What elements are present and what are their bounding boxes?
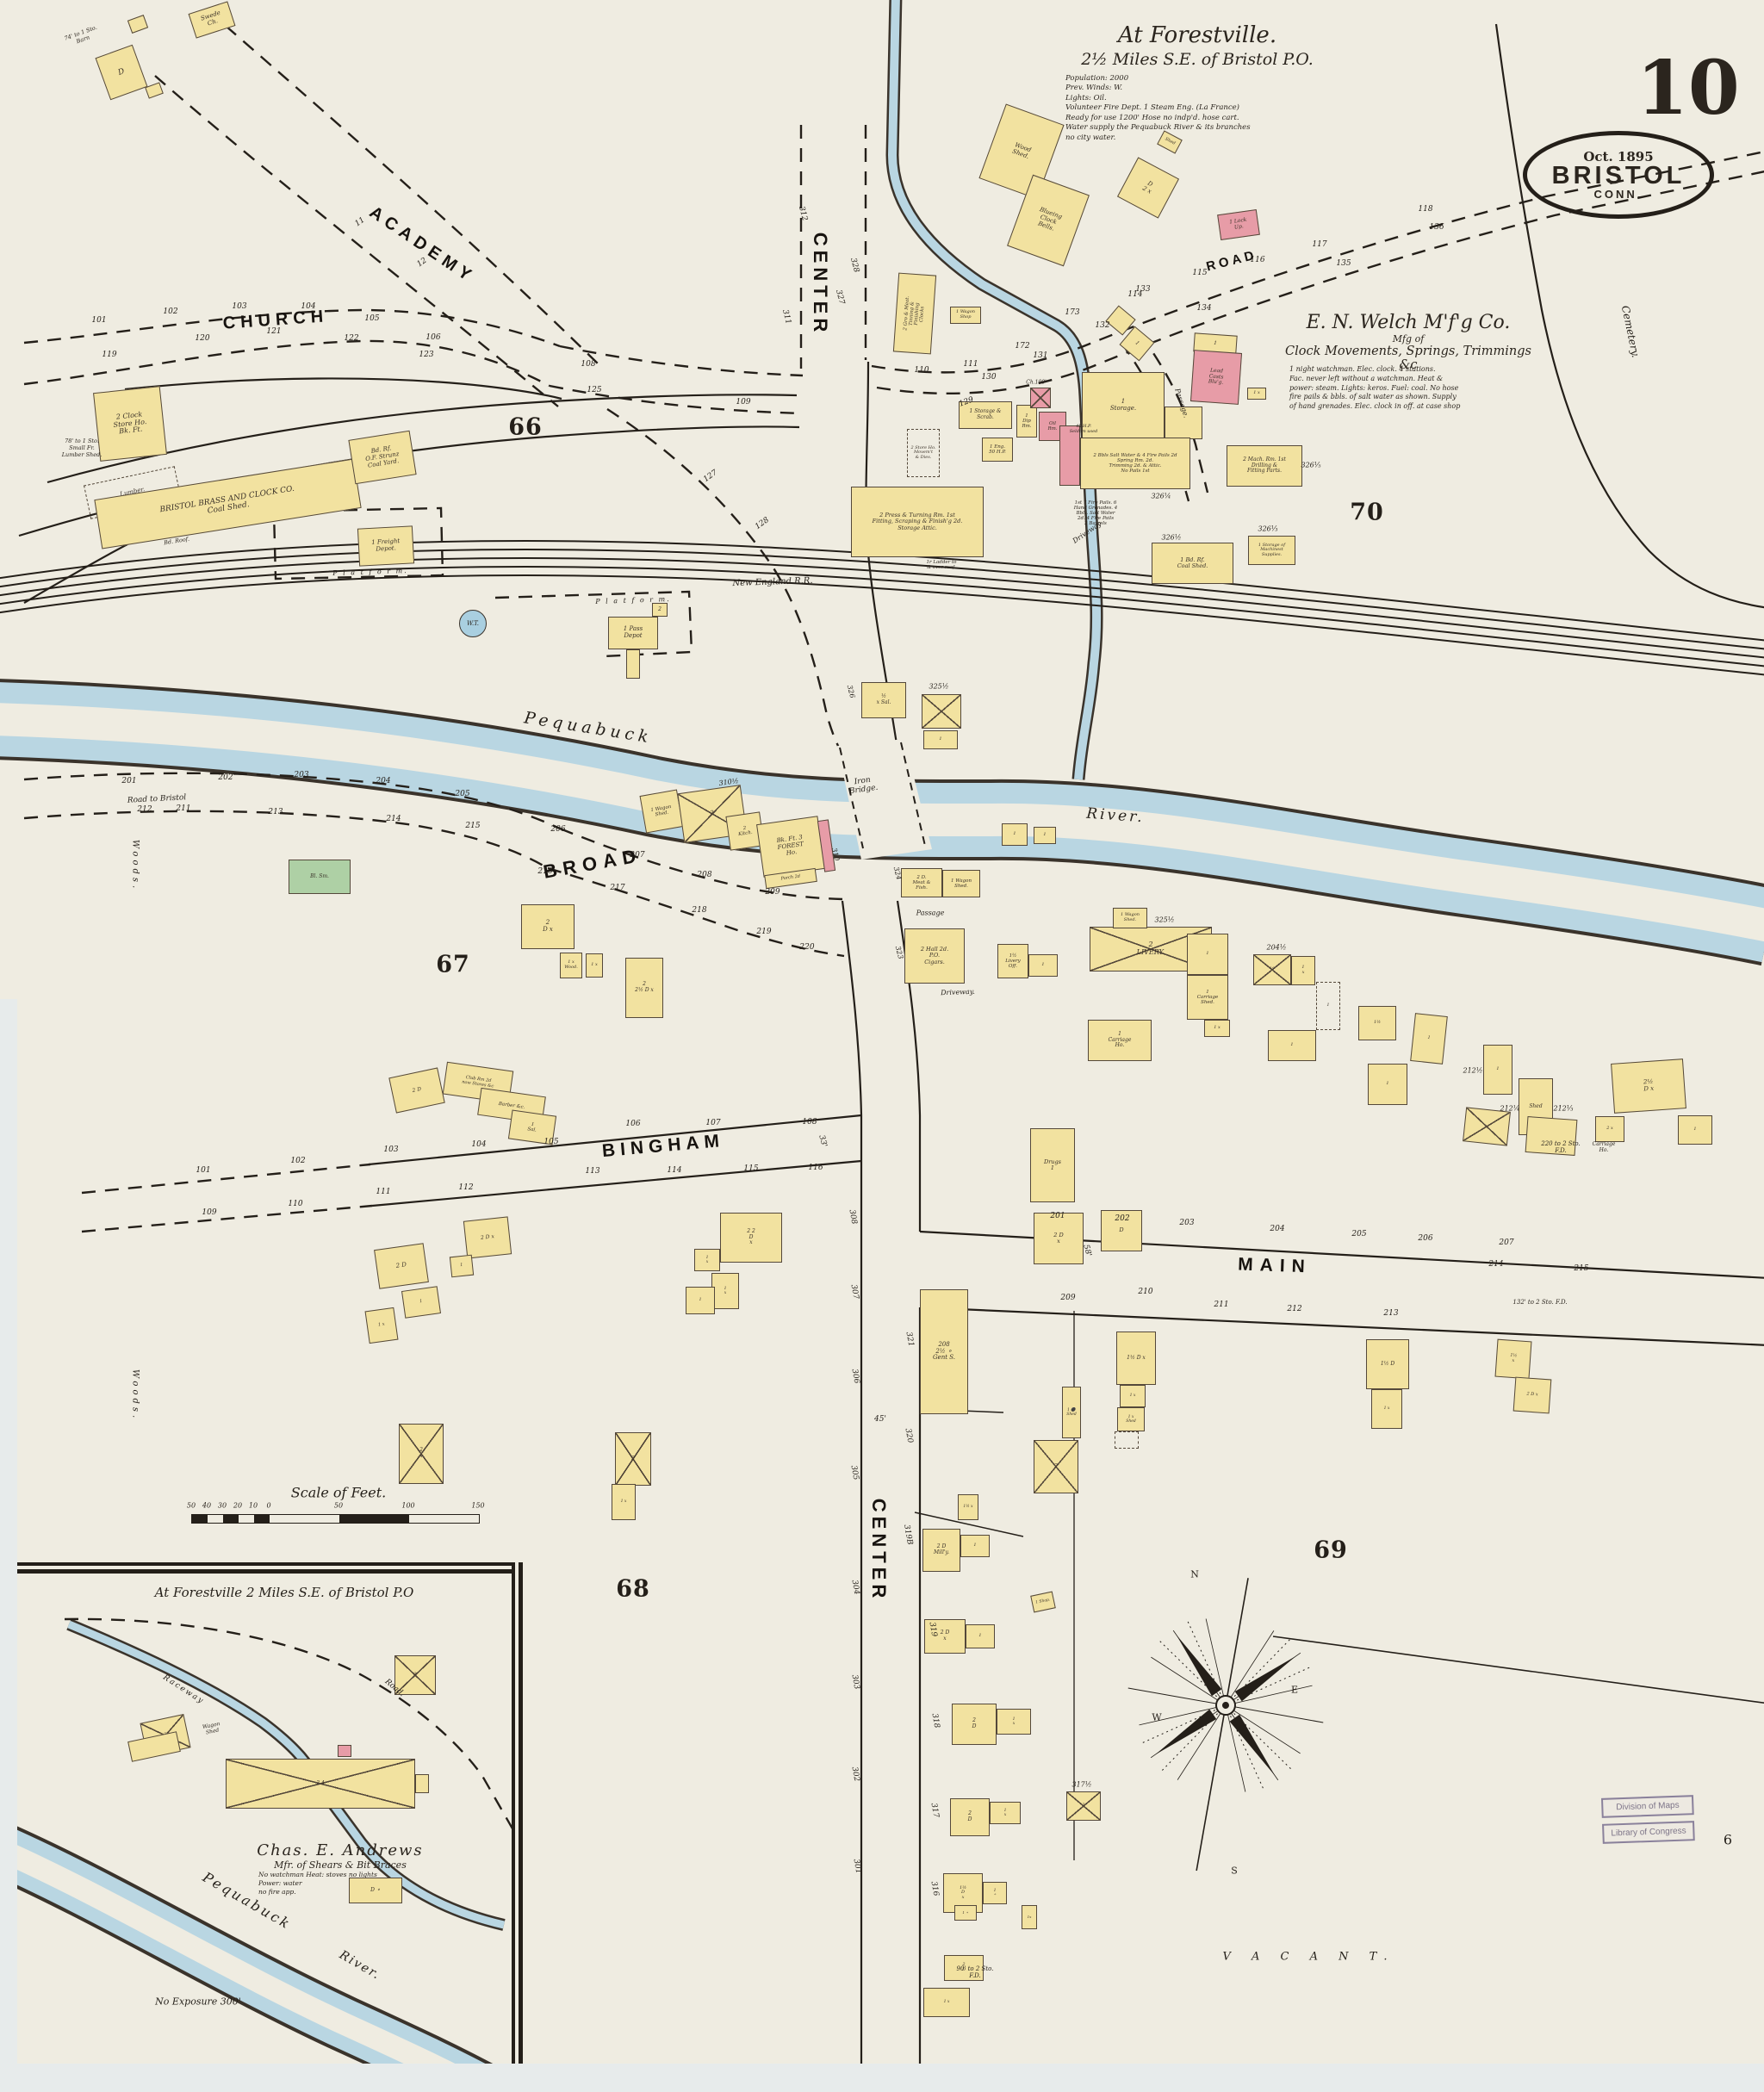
lot-number: 319B bbox=[902, 1524, 914, 1545]
lot-number: 123 bbox=[419, 351, 433, 359]
lot-number: 104 bbox=[471, 1140, 486, 1149]
lot-number: 205 bbox=[1351, 1230, 1366, 1238]
map-label: 45 H.P. Seldom used bbox=[1070, 424, 1097, 434]
lot-number: 307 bbox=[849, 1284, 860, 1301]
lot-number: 211 bbox=[1214, 1301, 1228, 1309]
lot-number: 211 bbox=[176, 804, 190, 813]
map-label: 90' to 2 Sto. F.D. bbox=[957, 1965, 994, 1979]
lot-number: 102 bbox=[163, 307, 177, 316]
map-label: 74' to 1 Sto. Barn bbox=[64, 24, 101, 49]
lot-number: 106 bbox=[425, 333, 440, 342]
lot-number: 105 bbox=[543, 1138, 558, 1146]
lot-number: 107 bbox=[705, 1119, 720, 1127]
lot-number: 220 bbox=[799, 943, 814, 952]
map-label: Raceway bbox=[161, 1673, 205, 1706]
lot-number: 104 bbox=[301, 302, 315, 311]
lot-number: 133 bbox=[1135, 285, 1150, 294]
lot-number: 214 bbox=[1488, 1260, 1503, 1269]
lot-number: 130 bbox=[981, 373, 996, 382]
lot-number: 102 bbox=[290, 1157, 305, 1165]
lot-number: 212 bbox=[137, 805, 152, 814]
lot-number: 106 bbox=[625, 1120, 640, 1128]
lot-number: 318 bbox=[930, 1713, 941, 1729]
lot-number: 116 bbox=[808, 1164, 823, 1172]
lot-number: 117 bbox=[1312, 240, 1326, 249]
lot-number: 312 bbox=[797, 205, 809, 221]
lot-number: 204½ bbox=[1266, 944, 1286, 952]
lot-number: 101 bbox=[196, 1166, 210, 1175]
lot-number: 209 bbox=[765, 888, 780, 897]
district-number: 67 bbox=[436, 952, 470, 978]
lot-number: 203 bbox=[1179, 1219, 1194, 1227]
lot-number: 308 bbox=[848, 1209, 859, 1226]
lot-number: 212½ bbox=[1463, 1067, 1482, 1075]
lot-number: 120 bbox=[195, 334, 209, 343]
map-label: P l a t f o r m. bbox=[332, 567, 408, 577]
lot-number: 136 bbox=[1429, 223, 1444, 232]
lot-number: 310½ bbox=[718, 777, 739, 787]
lot-number: 131 bbox=[1033, 351, 1047, 360]
lot-number: 213 bbox=[268, 808, 283, 816]
map-label: Cemetery. bbox=[1619, 304, 1642, 358]
map-label: River. bbox=[337, 1948, 383, 1983]
lot-number: 209 bbox=[1060, 1294, 1075, 1302]
lot-number: 110 bbox=[914, 366, 929, 375]
lot-number: 208 bbox=[697, 871, 711, 879]
map-label: Woods. bbox=[131, 840, 140, 891]
lot-number: 111 bbox=[963, 360, 978, 369]
lot-number: 326⅓ bbox=[1258, 525, 1277, 533]
lot-number: 135 bbox=[1336, 259, 1351, 268]
lot-number: 115 bbox=[743, 1164, 758, 1173]
district-number: 68 bbox=[616, 1576, 650, 1603]
lot-number: 317 bbox=[929, 1803, 941, 1819]
map-label: Road to Bristol bbox=[127, 793, 187, 805]
lot-number: 326 bbox=[846, 684, 857, 698]
lot-number: 45' bbox=[874, 1415, 886, 1424]
lot-number: 108 bbox=[802, 1118, 817, 1127]
lot-number: 311 bbox=[780, 308, 792, 325]
lot-number: 326½ bbox=[1161, 534, 1181, 542]
lot-number: 202 bbox=[1115, 1214, 1129, 1223]
lot-number: 128 bbox=[754, 516, 771, 531]
lot-number: 218 bbox=[692, 906, 706, 915]
district-number: 69 bbox=[1314, 1537, 1348, 1564]
street-name-bingham: BINGHAM bbox=[601, 1131, 725, 1162]
lot-number: 132 bbox=[1095, 321, 1109, 330]
lot-number: 205 bbox=[455, 790, 469, 798]
lot-number: 58' bbox=[1081, 1244, 1092, 1257]
lot-number: 103 bbox=[232, 302, 246, 311]
lot-number: 328 bbox=[848, 257, 860, 273]
lot-number: 316 bbox=[929, 1881, 941, 1897]
lot-number: 212¼ bbox=[1500, 1105, 1519, 1113]
lot-number: 206 bbox=[1418, 1234, 1432, 1243]
lot-number: 325½ bbox=[929, 683, 948, 691]
map-label: Woods. bbox=[131, 1369, 140, 1421]
district-number: 66 bbox=[508, 414, 543, 441]
lot-number: 115 bbox=[1192, 269, 1207, 277]
lot-number: 217 bbox=[610, 884, 624, 892]
lot-number: 210 bbox=[1138, 1288, 1152, 1296]
map-label: 78' to 1 Sto. Small Fr. Lumber Shed. bbox=[62, 438, 102, 458]
lot-number: 134 bbox=[1196, 304, 1211, 313]
lot-number: 303 bbox=[850, 1674, 861, 1691]
street-name-main: MAIN bbox=[1238, 1255, 1312, 1278]
lot-number: 321 bbox=[904, 1332, 916, 1348]
street-name-academy: ACADEMY bbox=[365, 202, 479, 288]
lot-number: 125 bbox=[587, 386, 601, 394]
lot-number: 122 bbox=[344, 334, 358, 343]
lot-number: 320 bbox=[904, 1428, 915, 1444]
lot-number: 202 bbox=[218, 773, 233, 782]
lot-number: 116 bbox=[1250, 256, 1264, 264]
lot-number: 33' bbox=[817, 1134, 828, 1148]
map-label: Pequabuck bbox=[523, 708, 654, 747]
lot-number: 109 bbox=[736, 398, 750, 407]
lot-number: 306 bbox=[850, 1369, 861, 1385]
lot-number: 207 bbox=[630, 851, 644, 860]
lot-number: 127 bbox=[702, 469, 719, 484]
map-label: 1r Ladder to & over roof. bbox=[926, 560, 956, 570]
lot-number: 323 bbox=[894, 945, 905, 959]
lot-number: 114 bbox=[667, 1166, 681, 1175]
lot-number: 118 bbox=[1418, 205, 1432, 214]
lot-number: 216 bbox=[537, 867, 552, 876]
map-label: 1st 7 Fire Pails. 6 Hand Grenades. 4 Bbl… bbox=[1074, 500, 1118, 526]
lot-number: 204 bbox=[1270, 1225, 1284, 1233]
lot-number: 111 bbox=[376, 1188, 390, 1196]
lot-number: 119 bbox=[102, 351, 116, 359]
lot-number: 326¼ bbox=[1151, 493, 1171, 500]
lot-number: 219 bbox=[756, 928, 771, 936]
lot-number: 325½ bbox=[1154, 916, 1174, 924]
map-label: V A C A N T. bbox=[1222, 1951, 1395, 1964]
lot-number: 302 bbox=[850, 1766, 861, 1783]
map-label: Iron Bridge. bbox=[848, 775, 879, 796]
map-label: River. bbox=[1086, 805, 1146, 827]
lot-number: 326⅕ bbox=[1301, 462, 1320, 469]
lot-number: 201 bbox=[121, 777, 136, 785]
lot-number: 207 bbox=[1499, 1238, 1513, 1247]
map-label: Carriage Ho. bbox=[1593, 1141, 1616, 1153]
lot-number: 324 bbox=[892, 866, 904, 880]
lot-number: 113 bbox=[585, 1167, 599, 1176]
lot-number: 215 bbox=[1574, 1264, 1588, 1273]
map-label: Wagon Shed bbox=[202, 1721, 221, 1736]
lot-number: 129 bbox=[958, 395, 975, 408]
lot-number: 327 bbox=[834, 289, 846, 305]
map-label: Driveway. bbox=[941, 988, 975, 996]
map-label: 220 to 2 Sto. F.D. bbox=[1541, 1140, 1580, 1154]
lot-number: 212⅓ bbox=[1553, 1105, 1573, 1113]
map-label: Passage bbox=[916, 909, 945, 917]
lot-number: 215 bbox=[465, 822, 480, 830]
lot-number: 304 bbox=[850, 1580, 861, 1596]
map-label: Bd. Roof. bbox=[164, 536, 190, 547]
map-label: Road. bbox=[383, 1678, 406, 1698]
lot-number: 109 bbox=[202, 1208, 216, 1217]
lot-number: 301 bbox=[852, 1859, 863, 1875]
street-name-center: CENTER bbox=[809, 233, 831, 336]
map-label: New England R.R. bbox=[732, 576, 812, 588]
map-label: Passage. bbox=[1173, 388, 1189, 419]
lot-number: 103 bbox=[383, 1145, 398, 1154]
lot-number: 11 bbox=[353, 216, 366, 229]
lot-number: 214 bbox=[386, 815, 401, 823]
district-number: 70 bbox=[1350, 500, 1384, 526]
lot-number: 203 bbox=[294, 771, 308, 779]
lot-number: 108 bbox=[581, 360, 595, 369]
lot-number: 121 bbox=[266, 327, 281, 336]
sanborn-map-sheet: At Forestville. 2½ Miles S.E. of Bristol… bbox=[0, 0, 1764, 2092]
lot-number: 206 bbox=[550, 825, 565, 834]
map-label: Ch.100' bbox=[1026, 380, 1046, 386]
map-label: Pequabuck bbox=[200, 1869, 295, 1933]
lot-number: 101 bbox=[91, 316, 106, 325]
map-label: 132' to 2 Sto. F.D. bbox=[1512, 1299, 1567, 1306]
lot-number: 317½ bbox=[1071, 1781, 1091, 1789]
lot-number: 110 bbox=[288, 1200, 302, 1208]
lot-number: 204 bbox=[376, 777, 390, 785]
lot-number: 172 bbox=[1015, 342, 1029, 351]
lot-number: 112 bbox=[458, 1183, 473, 1192]
lot-number: 319 bbox=[928, 1622, 939, 1638]
map-label: No Exposure 300' bbox=[155, 1996, 241, 2008]
lot-number: 305 bbox=[849, 1465, 860, 1481]
lot-number: 310 bbox=[830, 847, 842, 861]
labels-layer: ACADEMYCHURCHCENTERCENTERROADBROADBINGHA… bbox=[0, 0, 1764, 2092]
lot-number: 201 bbox=[1050, 1212, 1065, 1220]
street-name-center: CENTER bbox=[867, 1499, 890, 1602]
street-name-broad: BROAD bbox=[542, 844, 643, 884]
lot-number: 105 bbox=[364, 314, 379, 323]
lot-number: 212 bbox=[1287, 1305, 1301, 1313]
map-label: P l a t f o r m. bbox=[595, 595, 671, 605]
lot-number: 173 bbox=[1065, 308, 1079, 317]
lot-number: 213 bbox=[1383, 1309, 1398, 1318]
